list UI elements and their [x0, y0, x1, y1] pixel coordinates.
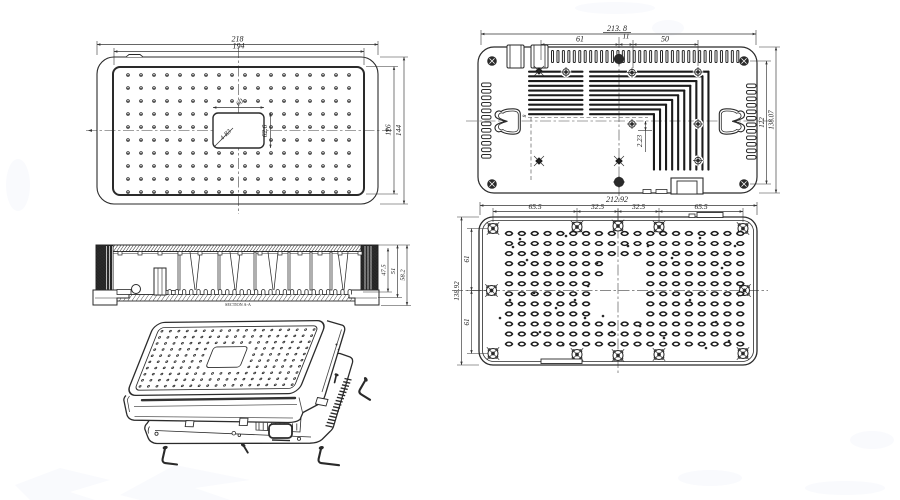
- svg-text:138.07: 138.07: [768, 110, 776, 130]
- svg-text:65.5: 65.5: [528, 202, 541, 211]
- svg-text:194: 194: [233, 42, 245, 51]
- svg-text:11: 11: [623, 32, 630, 41]
- svg-text:65.5: 65.5: [694, 202, 707, 211]
- svg-text:61: 61: [463, 319, 471, 326]
- svg-text:8: 8: [522, 114, 528, 117]
- svg-text:61: 61: [576, 35, 584, 44]
- svg-text:122: 122: [758, 117, 766, 128]
- svg-text:126: 126: [384, 124, 393, 136]
- svg-text:62.6: 62.6: [261, 124, 269, 137]
- svg-text:144: 144: [394, 125, 403, 137]
- svg-text:50: 50: [661, 35, 669, 44]
- svg-text:2.23: 2.23: [636, 134, 644, 147]
- svg-text:32.5: 32.5: [590, 202, 604, 211]
- svg-text:212.92: 212.92: [606, 195, 628, 204]
- svg-text:138.92: 138.92: [453, 281, 461, 301]
- svg-text:47.5: 47.5: [381, 264, 388, 276]
- svg-text:32.5: 32.5: [631, 202, 645, 211]
- svg-text:51: 51: [390, 268, 397, 275]
- svg-text:58.2: 58.2: [400, 269, 407, 281]
- svg-text:61: 61: [463, 256, 471, 263]
- svg-text:SECTION A-A: SECTION A-A: [225, 302, 251, 307]
